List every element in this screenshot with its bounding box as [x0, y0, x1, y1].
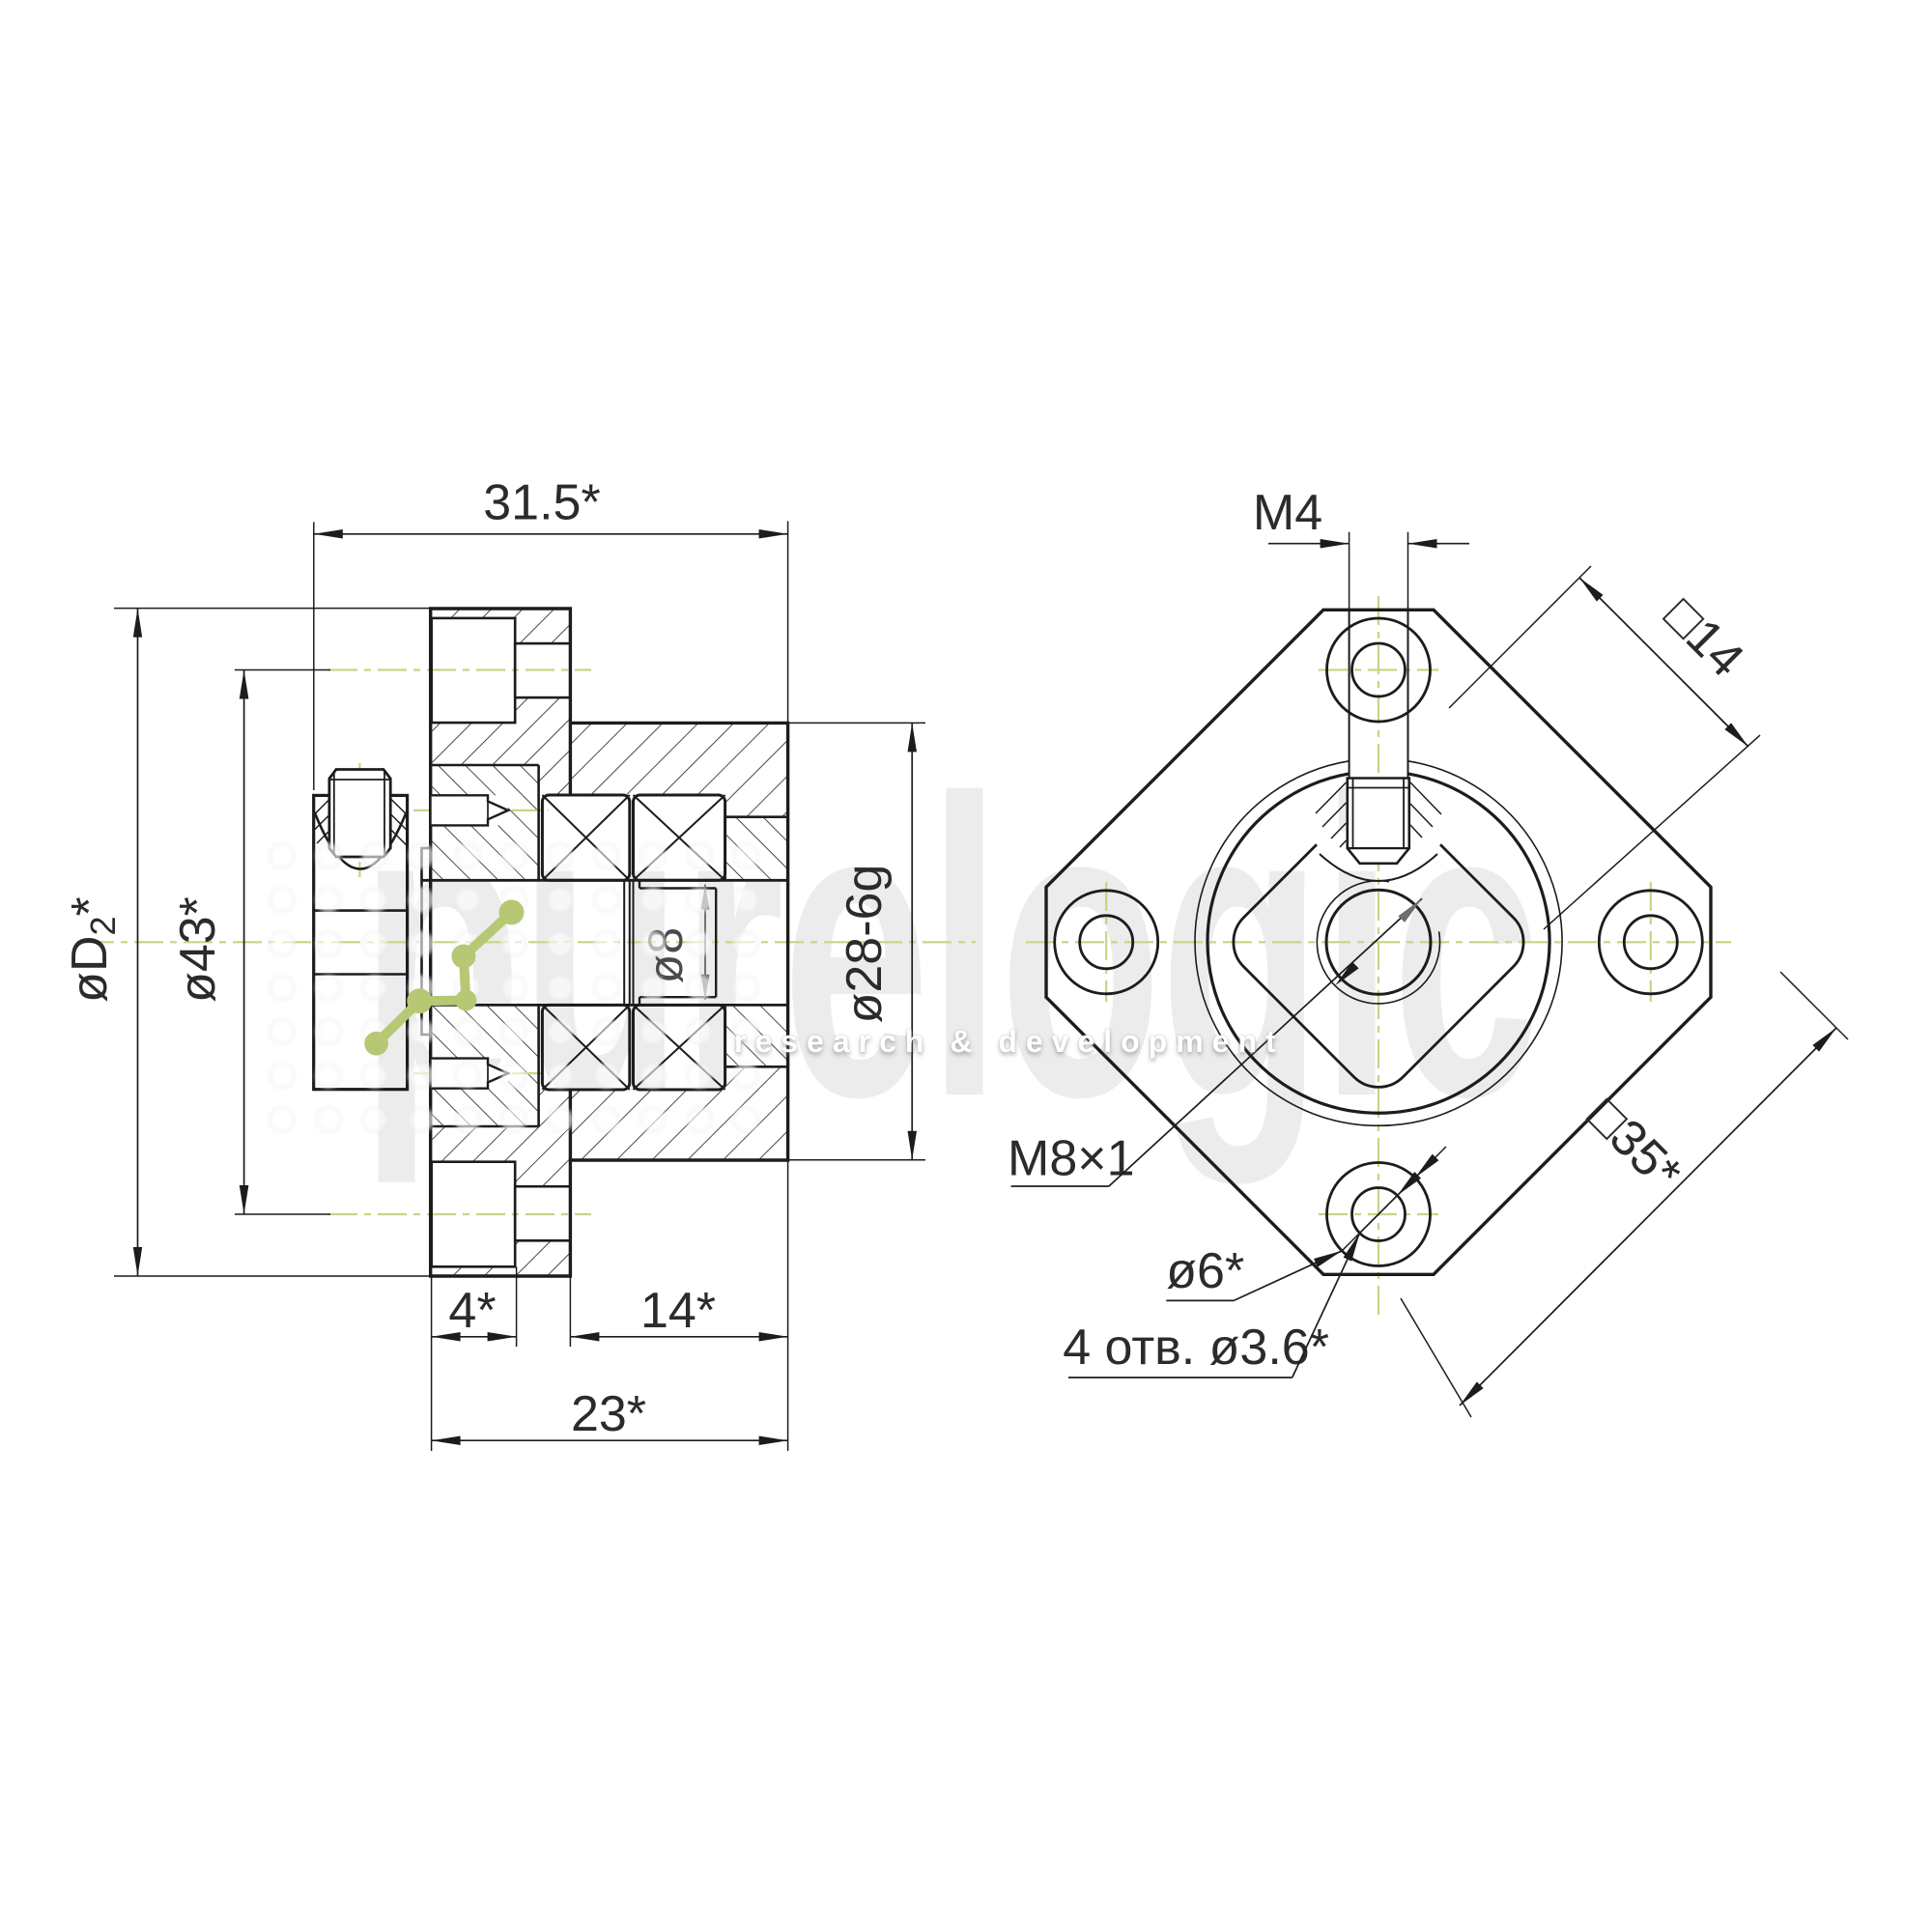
svg-text:14*: 14* — [640, 1283, 716, 1339]
svg-text:ø6*: ø6* — [1166, 1243, 1244, 1299]
svg-text:ø28-6g: ø28-6g — [837, 865, 893, 1024]
svg-text:4*: 4* — [448, 1283, 496, 1339]
svg-text:ø43*: ø43* — [170, 896, 226, 1003]
svg-text:M4: M4 — [1253, 485, 1322, 541]
svg-text:øD2*: øD2* — [62, 896, 123, 1003]
svg-text:23*: 23* — [571, 1386, 646, 1442]
svg-text:4 отв. ø3.6*: 4 отв. ø3.6* — [1063, 1320, 1329, 1376]
svg-text:research & development: research & development — [734, 1024, 1285, 1059]
svg-text:31.5*: 31.5* — [483, 475, 600, 531]
svg-text:M8×1: M8×1 — [1008, 1130, 1135, 1186]
